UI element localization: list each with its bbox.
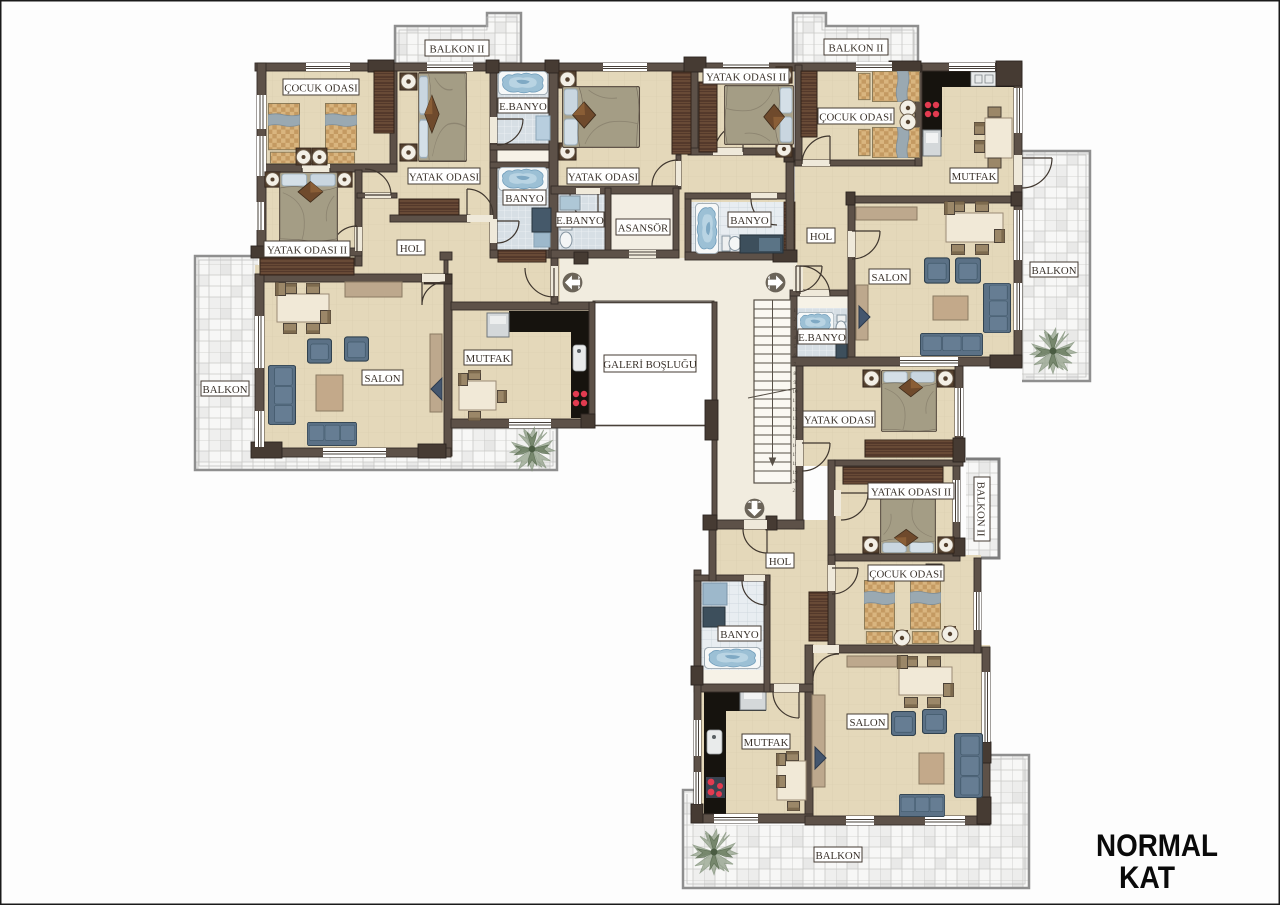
svg-text:BANYO: BANYO (505, 193, 544, 205)
svg-text:ASANSÖR: ASANSÖR (618, 223, 669, 235)
svg-text:10: 10 (793, 390, 799, 395)
svg-text:GALERİ BOŞLUĞU: GALERİ BOŞLUĞU (603, 359, 696, 371)
svg-text:SALON: SALON (365, 373, 401, 385)
svg-text:KAT: KAT (1119, 859, 1175, 895)
svg-text:HOL: HOL (810, 231, 832, 243)
svg-text:MUTFAK: MUTFAK (744, 737, 789, 749)
svg-text:ÇOCUK ODASI: ÇOCUK ODASI (819, 112, 893, 124)
svg-text:BALKON: BALKON (816, 850, 861, 862)
svg-text:E.BANYO: E.BANYO (556, 215, 604, 227)
svg-text:NORMAL: NORMAL (1096, 827, 1218, 863)
svg-text:YATAK ODASI II: YATAK ODASI II (871, 487, 952, 499)
svg-text:ÇOCUK ODASI: ÇOCUK ODASI (869, 569, 943, 581)
svg-text:YATAK ODASI: YATAK ODASI (409, 172, 480, 184)
svg-text:SALON: SALON (850, 717, 886, 729)
svg-text:ÇOCUK ODASI: ÇOCUK ODASI (284, 83, 358, 95)
svg-text:YATAK ODASI II: YATAK ODASI II (267, 245, 348, 257)
svg-text:BALKON II: BALKON II (430, 44, 485, 56)
svg-text:YATAK ODASI II: YATAK ODASI II (706, 72, 787, 84)
svg-text:21: 21 (793, 489, 799, 494)
svg-text:BANYO: BANYO (720, 629, 759, 641)
svg-text:YATAK ODASI: YATAK ODASI (804, 415, 875, 427)
svg-text:19: 19 (793, 471, 799, 476)
svg-text:20: 20 (793, 480, 799, 485)
svg-text:E.BANYO: E.BANYO (499, 101, 547, 113)
svg-text:14: 14 (793, 426, 799, 431)
svg-text:BANYO: BANYO (730, 215, 769, 227)
svg-text:HOL: HOL (769, 556, 791, 568)
svg-text:13: 13 (793, 417, 799, 422)
svg-text:11: 11 (793, 399, 798, 404)
svg-text:HOL: HOL (400, 243, 422, 255)
svg-text:SALON: SALON (872, 272, 908, 284)
svg-text:BALKON: BALKON (203, 384, 248, 396)
svg-text:BALKON: BALKON (1032, 265, 1077, 277)
svg-text:12: 12 (793, 408, 799, 413)
svg-text:BALKON II: BALKON II (975, 482, 987, 537)
svg-text:E.BANYO: E.BANYO (798, 332, 846, 344)
svg-text:MUTFAK: MUTFAK (466, 353, 511, 365)
svg-text:15: 15 (793, 435, 799, 440)
svg-text:MUTFAK: MUTFAK (952, 171, 997, 183)
svg-text:YATAK ODASI: YATAK ODASI (568, 172, 639, 184)
svg-text:BALKON II: BALKON II (829, 43, 884, 55)
